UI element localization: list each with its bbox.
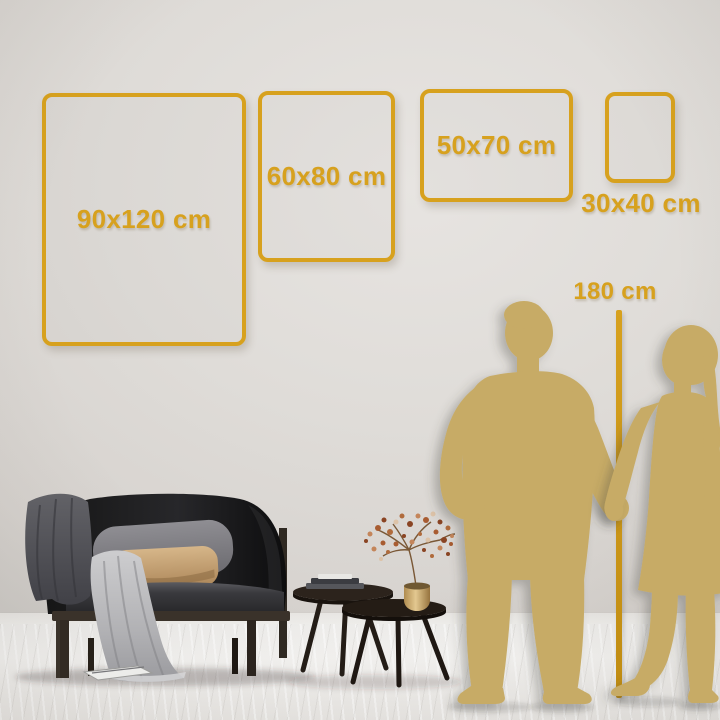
size-frame-50x70: 50x70 cm xyxy=(420,89,573,202)
size-label-50x70: 50x70 cm xyxy=(437,130,557,161)
size-frame-90x120: 90x120 cm xyxy=(42,93,246,346)
poster-size-guide-scene: 90x120 cm 60x80 cm 50x70 cm 30x40 cm 180… xyxy=(0,0,720,720)
size-label-30x40: 30x40 cm xyxy=(575,188,707,219)
size-frame-60x80: 60x80 cm xyxy=(258,91,395,262)
baseboard xyxy=(0,613,720,624)
size-label-90x120: 90x120 cm xyxy=(77,204,211,235)
height-ruler-line xyxy=(616,310,622,698)
size-frame-30x40 xyxy=(605,92,675,183)
size-label-60x80: 60x80 cm xyxy=(267,161,387,192)
height-ruler-label: 180 cm xyxy=(555,278,675,306)
wood-floor xyxy=(0,624,720,720)
